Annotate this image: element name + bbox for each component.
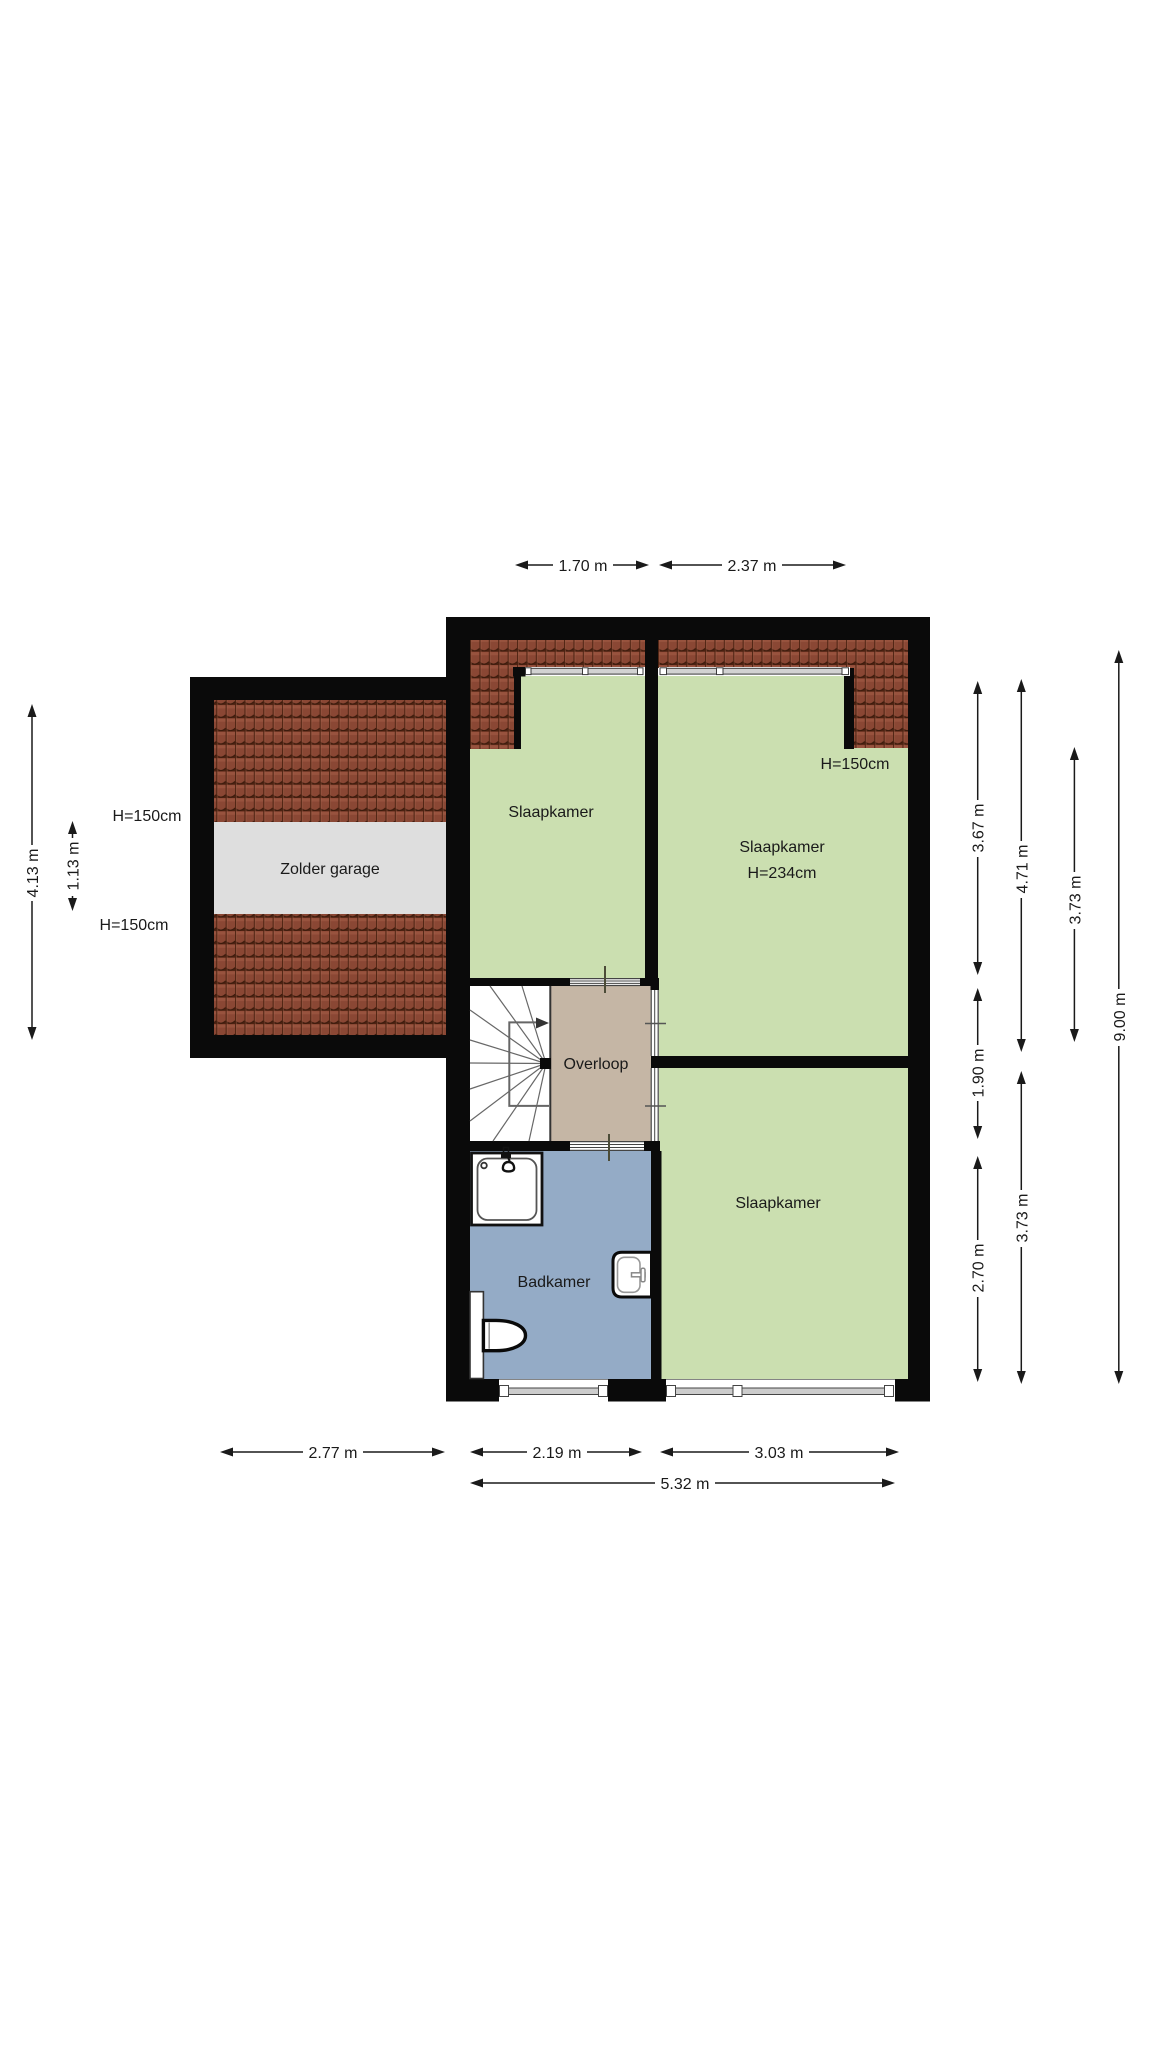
svg-text:H=150cm: H=150cm <box>113 808 182 825</box>
svg-text:9.00 m: 9.00 m <box>1112 993 1129 1042</box>
svg-text:4.13 m: 4.13 m <box>25 849 42 898</box>
svg-text:3.03 m: 3.03 m <box>755 1445 804 1462</box>
svg-text:4.71 m: 4.71 m <box>1014 845 1031 894</box>
svg-text:2.19 m: 2.19 m <box>533 1445 582 1462</box>
svg-text:Badkamer: Badkamer <box>518 1274 592 1291</box>
svg-text:H=234cm: H=234cm <box>748 865 817 882</box>
svg-text:1.13 m: 1.13 m <box>66 842 83 891</box>
svg-text:3.73 m: 3.73 m <box>1014 1194 1031 1243</box>
svg-text:Slaapkamer: Slaapkamer <box>735 1195 821 1212</box>
svg-text:H=150cm: H=150cm <box>821 756 890 773</box>
svg-text:Slaapkamer: Slaapkamer <box>739 839 825 856</box>
svg-text:Zolder garage: Zolder garage <box>280 861 380 878</box>
svg-text:3.67 m: 3.67 m <box>971 804 988 853</box>
svg-text:3.73 m: 3.73 m <box>1067 876 1084 925</box>
svg-text:H=150cm: H=150cm <box>100 917 169 934</box>
svg-text:2.77 m: 2.77 m <box>309 1445 358 1462</box>
svg-text:1.90 m: 1.90 m <box>971 1049 988 1098</box>
svg-text:2.37 m: 2.37 m <box>728 558 777 575</box>
svg-text:5.32 m: 5.32 m <box>661 1476 710 1493</box>
svg-text:Slaapkamer: Slaapkamer <box>508 804 594 821</box>
svg-text:2.70 m: 2.70 m <box>971 1244 988 1293</box>
svg-text:Overloop: Overloop <box>564 1056 629 1073</box>
svg-text:1.70 m: 1.70 m <box>559 558 608 575</box>
